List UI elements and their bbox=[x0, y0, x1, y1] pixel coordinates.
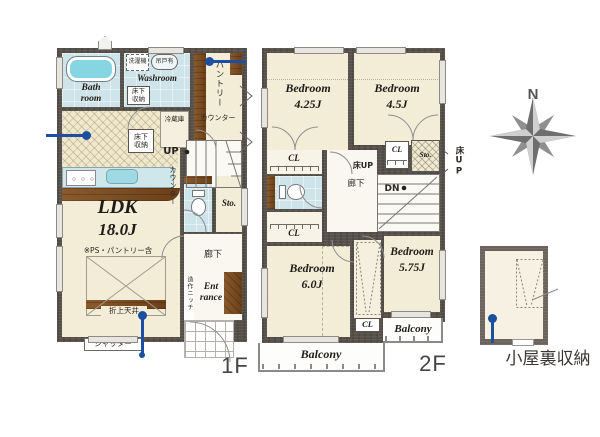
window bbox=[283, 336, 339, 343]
hallway-2f-label: 廊下 bbox=[343, 179, 369, 190]
window bbox=[56, 57, 63, 89]
storage-2f-label: Sto. bbox=[412, 150, 439, 161]
toilet-bowl-1f bbox=[191, 198, 206, 216]
pin-line-attic bbox=[491, 320, 494, 343]
down-label: DN bbox=[381, 183, 403, 195]
underfloor-storage-kitchen: 床下 収納 bbox=[128, 129, 154, 153]
balcony-right-ticks bbox=[385, 336, 441, 341]
floor-plan-canvas: Bath room 洗濯機 吊戸有 Washroom 床下 収納 パントリー カ… bbox=[0, 0, 600, 437]
pantry-label: パントリー bbox=[212, 60, 225, 118]
closet2-label: CL bbox=[283, 227, 305, 239]
pantry-shelves bbox=[194, 53, 206, 145]
stair-counter-label: カウンター bbox=[167, 166, 178, 214]
floor1-label: 1F bbox=[216, 354, 254, 378]
closet-hall-label: CL bbox=[387, 144, 407, 155]
window bbox=[88, 336, 138, 343]
floor-up-side-label: 床UP bbox=[450, 146, 465, 190]
niche-label: 造作ニッチ bbox=[184, 276, 194, 322]
pin-line-pantry bbox=[212, 60, 246, 63]
pin-attic bbox=[488, 314, 497, 323]
balcony-left-label: Balcony bbox=[292, 347, 350, 362]
underfloor-storage-washroom: 床下 収納 bbox=[127, 86, 150, 105]
window bbox=[439, 60, 446, 104]
ceiling-line bbox=[354, 79, 440, 80]
floor2-label: 2F bbox=[412, 352, 454, 376]
window bbox=[356, 47, 406, 54]
fridge-label: 冷蔵庫 bbox=[160, 115, 189, 125]
storage-1f-label: Sto. bbox=[216, 197, 242, 209]
window bbox=[439, 250, 446, 300]
pantry-shelf-right bbox=[230, 53, 242, 75]
pin-line-ceiling bbox=[141, 316, 144, 353]
vent bbox=[98, 36, 112, 50]
center-closet-floor bbox=[354, 240, 381, 318]
bedroom4-name: Bedroom bbox=[384, 246, 440, 259]
kitchen-sink bbox=[106, 169, 138, 184]
closet1-rail bbox=[270, 166, 319, 171]
washing-machine: 洗濯機 bbox=[126, 54, 149, 71]
washroom-label: Washroom bbox=[126, 72, 188, 84]
balcony-left-ticks bbox=[262, 364, 381, 369]
ldk-note: ※PS・パントリー含 bbox=[70, 246, 166, 256]
bedroom3-size: 6.0J bbox=[276, 278, 348, 292]
shoe-cabinet bbox=[224, 272, 242, 314]
toilet-bowl-2f bbox=[287, 184, 305, 200]
bathroom-label: Bath room bbox=[64, 83, 118, 105]
compass-north-label: N bbox=[523, 86, 543, 104]
ldk-name: LDK bbox=[75, 196, 160, 218]
attic-window bbox=[512, 339, 534, 346]
bedroom1-size: 4.25J bbox=[272, 98, 344, 112]
up-label: UP bbox=[158, 146, 184, 158]
ceiling-line bbox=[267, 79, 348, 80]
window bbox=[148, 47, 184, 54]
center-closet-label: CL bbox=[355, 318, 380, 332]
window bbox=[241, 188, 248, 226]
bedroom3-name: Bedroom bbox=[276, 262, 348, 276]
entrance-porch bbox=[184, 320, 234, 358]
pin-line-kitchen bbox=[46, 134, 86, 137]
toilet-tank-2f bbox=[279, 185, 286, 199]
window bbox=[261, 268, 268, 318]
bedroom2-size: 4.5J bbox=[360, 98, 434, 112]
pin-kitchen bbox=[82, 131, 91, 140]
ldk-size: 18.0J bbox=[75, 220, 160, 240]
bedroom4-size: 5.75J bbox=[384, 262, 440, 275]
pantry-counter-label: カウンター bbox=[194, 113, 242, 123]
window bbox=[56, 246, 63, 292]
attic-label: 小屋裏収納 bbox=[498, 349, 598, 370]
toilet-counter-1f bbox=[184, 176, 212, 184]
closet-hall-rail bbox=[387, 160, 407, 165]
window bbox=[56, 204, 63, 238]
hanging-cabinet: 吊戸有 bbox=[151, 54, 178, 70]
bathtub bbox=[66, 56, 116, 82]
toilet-cabinet-2f bbox=[267, 176, 275, 209]
pin-ceiling bbox=[138, 311, 147, 320]
window bbox=[294, 47, 344, 54]
toilet-tank-1f bbox=[192, 190, 205, 197]
stove bbox=[66, 170, 96, 186]
window bbox=[391, 311, 431, 318]
floor-up-label: 床UP bbox=[350, 161, 376, 171]
hallway-1f-label: 廊下 bbox=[200, 250, 226, 261]
closet1-label: CL bbox=[283, 152, 305, 164]
balcony-right-label: Balcony bbox=[388, 322, 438, 336]
bedroom2-name: Bedroom bbox=[360, 82, 434, 96]
pin-ceiling-end bbox=[139, 352, 145, 358]
window bbox=[261, 88, 268, 128]
compass-rose bbox=[490, 97, 576, 175]
bedroom1-name: Bedroom bbox=[272, 82, 344, 96]
pin-pantry bbox=[205, 57, 214, 66]
